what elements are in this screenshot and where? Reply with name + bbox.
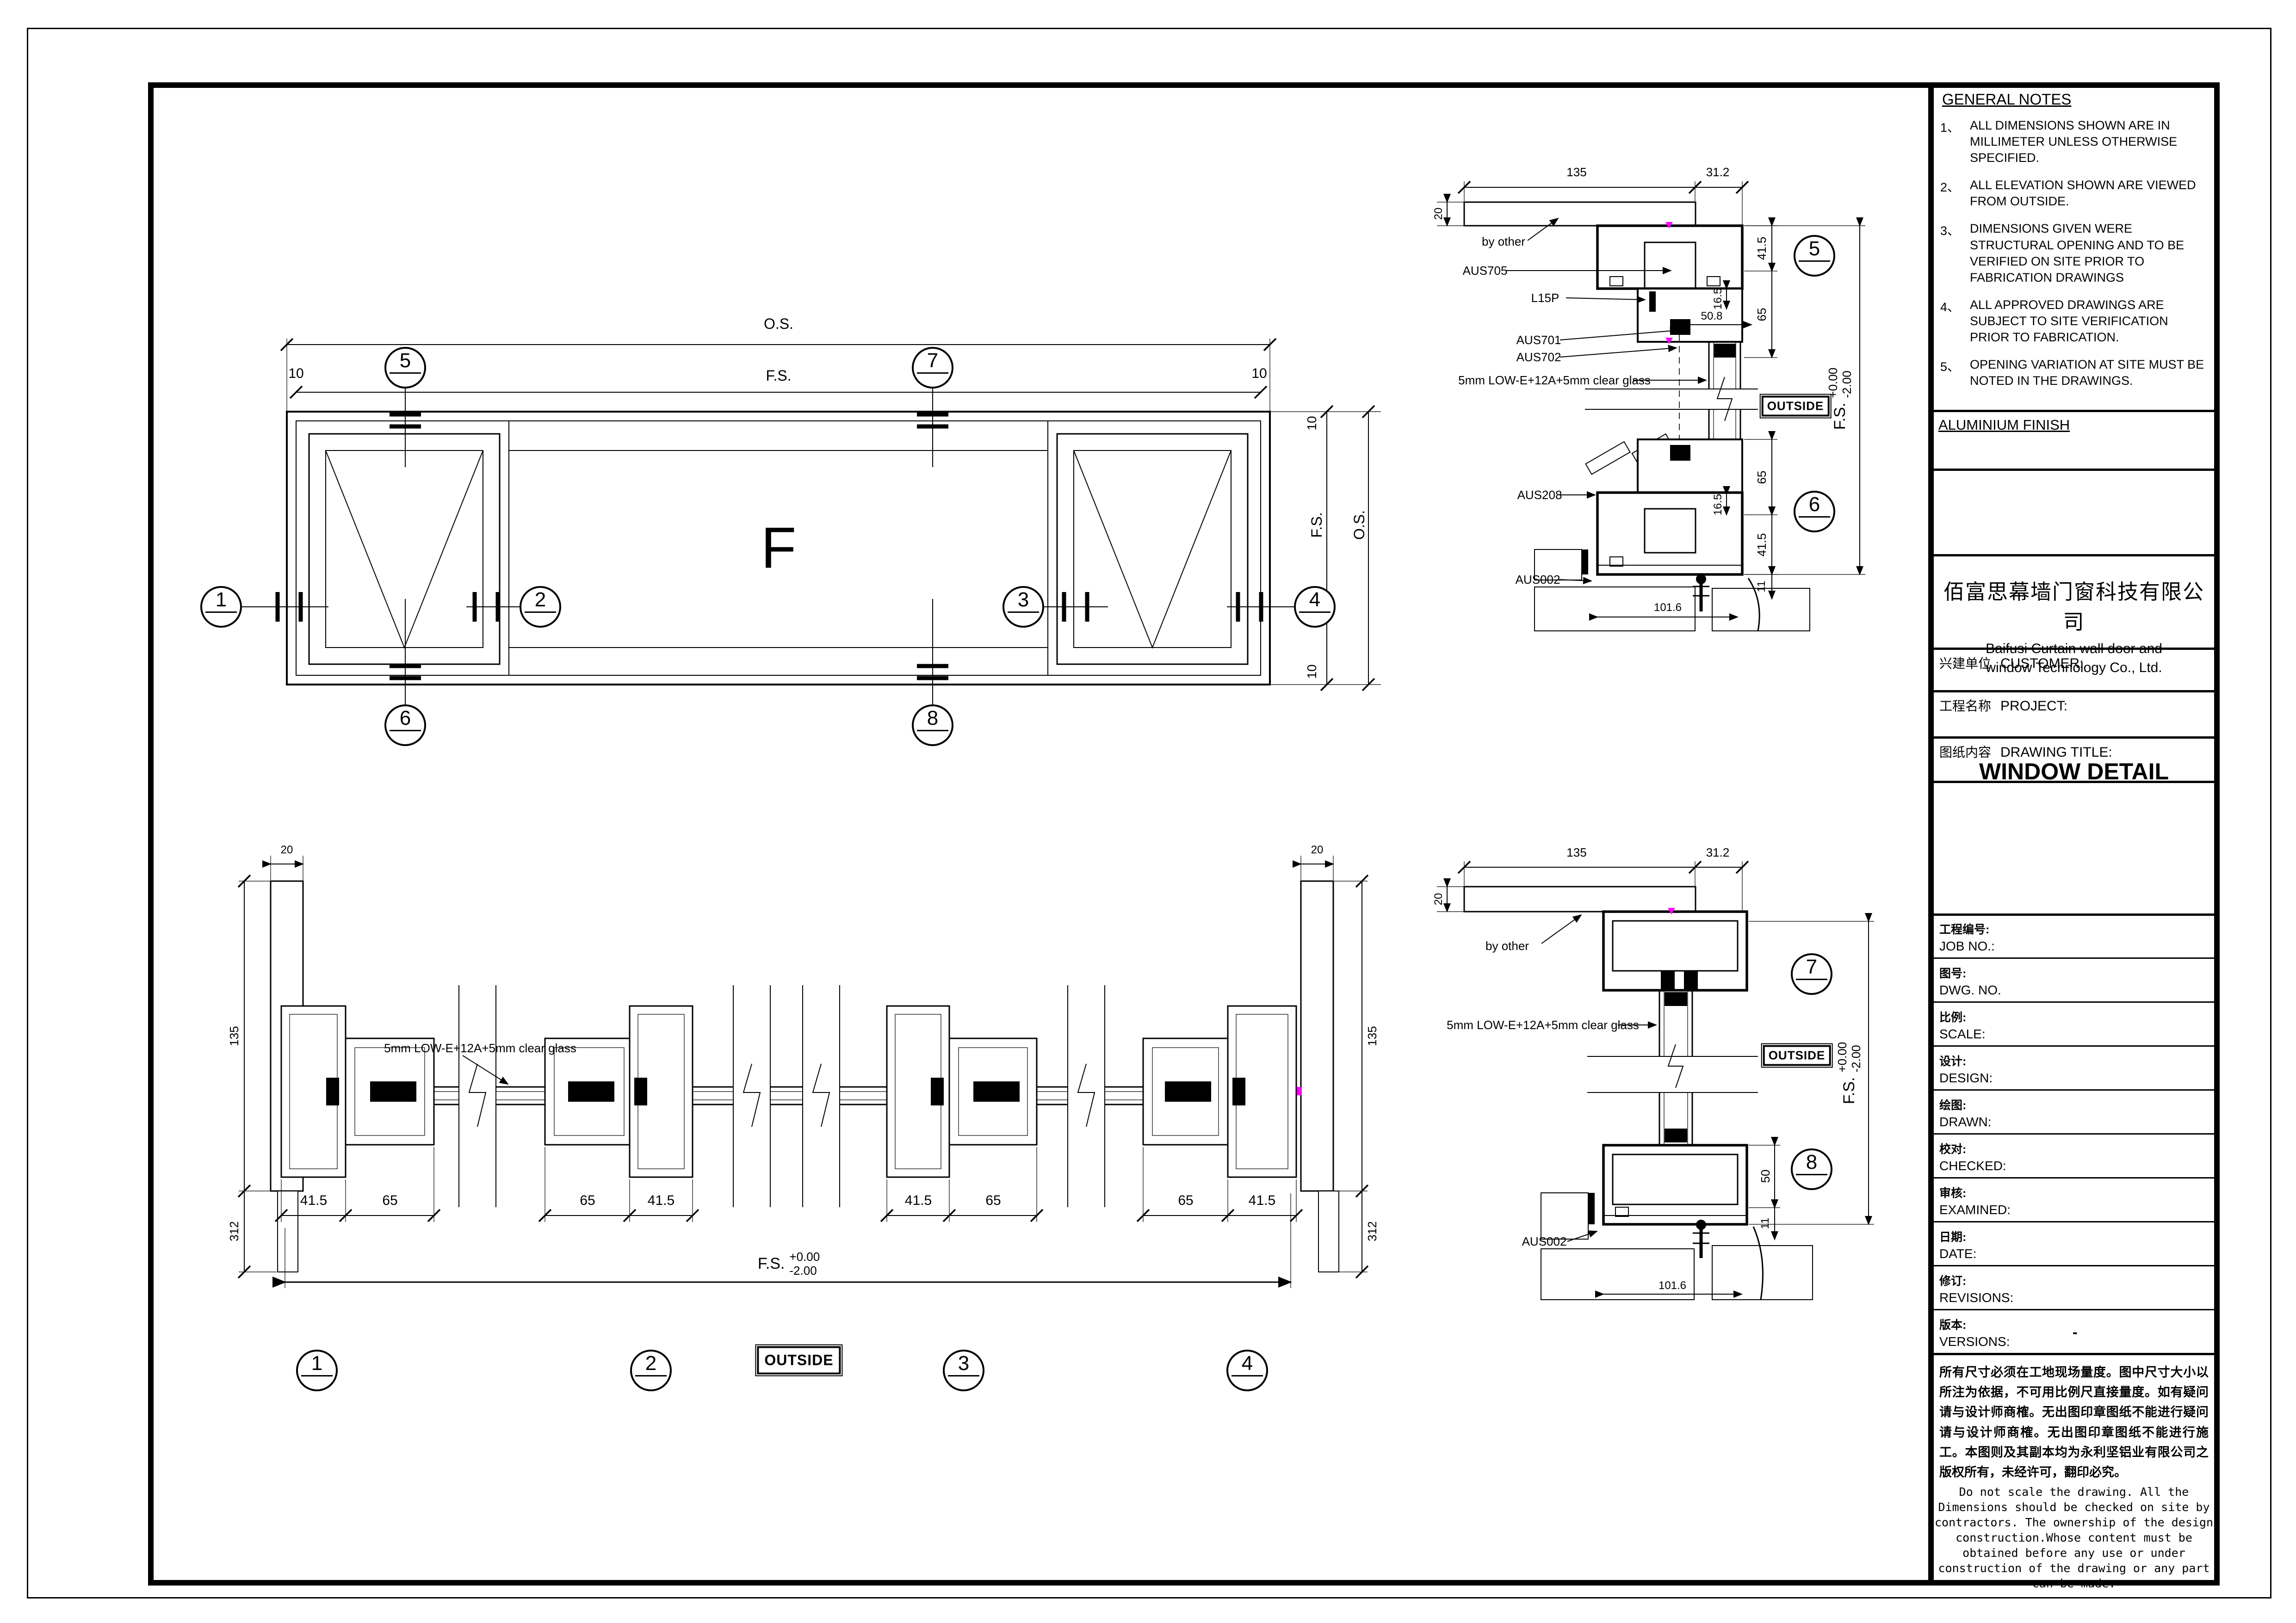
detail-bubble-2-plan: 2 [630,1350,672,1391]
dim-16-5-head: 16.5 [1713,288,1724,310]
plan-sections-linework [238,856,1368,1288]
glass-spec-label-plan: 5mm LOW-E+12A+5mm clear glass [384,1042,576,1054]
dim-41-5-plan-3: 41.5 [905,1194,932,1208]
fs-level-text: F.S. [758,1255,785,1273]
drawing-title-section: 图纸内容 DRAWING TITLE: WINDOW DETAIL [1934,736,2214,781]
outside-label-section5: OUTSIDE [1762,396,1830,417]
detail-bubble-8-section: 8 [1791,1148,1832,1190]
by-other-label-7: by other [1485,940,1529,952]
elevation-os-dim-label: O.S. [764,316,793,331]
drawing-sheet: O.S. F.S. 10 10 F.S. O.S. 10 10 F 5 7 6 … [0,0,2296,1623]
dim-20-wall-left: 20 [281,845,293,856]
dim-31-2-head-78: 31.2 [1706,846,1730,858]
detail-bubble-1-plan: 1 [296,1350,338,1391]
customer-label-cn: 兴建单位 [1939,654,1991,672]
detail-bubble-8-elevation: 8 [912,704,953,746]
detail-bubble-3-elevation: 3 [1003,586,1044,628]
dim-101-6-sill-78: 101.6 [1659,1280,1686,1291]
field-label-en: DESIGN: [1939,1071,1993,1086]
detail-bubble-5-section: 5 [1794,235,1835,277]
finish-empty-box [1934,469,2214,554]
disclaimer-section: 所有尺寸必须在工地现场量度。图中尺寸大小以所注为依据，不可用比例尺直接量度。如有… [1934,1353,2214,1586]
field-label-cn: 版本: [1939,1316,1966,1333]
dim-20-head: 20 [1433,208,1444,220]
bubble-number: 4 [1296,590,1334,610]
detail-bubble-4-plan: 4 [1226,1350,1268,1391]
field-label-en: CHECKED: [1939,1159,2006,1173]
elevation-linework [241,339,1381,706]
elevation-os-vertical-label: O.S. [1352,510,1367,540]
elevation-dim-10-right: 10 [1251,367,1267,381]
bubble-number: 3 [945,1353,983,1374]
general-note-item: 4、 ALL APPROVED DRAWINGS ARE SUBJECT TO … [1940,297,2209,346]
dim-65-plan-3: 65 [985,1194,1001,1208]
elevation-panel-label: F [761,519,796,577]
design-row: 设计: DESIGN: [1934,1045,2214,1089]
dim-20-wall-right: 20 [1311,845,1324,856]
dim-65-plan-2: 65 [580,1194,595,1208]
fs-level-upper: +0.00 [1826,368,1840,398]
fs-level-lower: -2.00 [1840,368,1854,398]
note-number: 1、 [1940,117,1970,166]
bubble-number: 6 [1795,494,1833,515]
detail-bubble-6-elevation: 6 [384,704,426,746]
profile-label-aus002-d8: AUS002 [1522,1235,1567,1247]
bubble-number: 7 [914,351,952,371]
job-no-row: 工程编号: JOB NO.: [1934,913,2214,957]
field-label-en: DWG. NO. [1939,983,2001,998]
field-label-cn: 比例: [1939,1008,1966,1025]
field-label-cn: 审核: [1939,1184,1966,1201]
bubble-number: 5 [1795,239,1833,259]
customer-label-en: CUSTOMER: [2000,656,2083,672]
note-number: 4、 [1940,297,1970,346]
general-notes-section: GENERAL NOTES 1、 ALL DIMENSIONS SHOWN AR… [1934,82,2214,410]
field-label-cn: 日期: [1939,1228,1966,1245]
detail-bubble-3-plan: 3 [943,1350,984,1391]
profile-label-aus701: AUS701 [1516,334,1561,346]
dim-312-wall-left: 312 [228,1221,240,1241]
note-text: ALL DIMENSIONS SHOWN ARE IN MILLIMETER U… [1970,117,2209,166]
dim-41-5-plan-4: 41.5 [1249,1194,1275,1208]
elevation-fs-dim-label: F.S. [766,368,791,383]
dim-101-6-sill: 101.6 [1654,602,1682,613]
bubble-number: 1 [298,1353,336,1374]
project-label-cn: 工程名称 [1939,696,1991,715]
dim-312-wall-right: 312 [1366,1221,1378,1241]
detail-bubble-6-section: 6 [1794,491,1835,532]
date-row: 日期: DATE: [1934,1221,2214,1265]
bubble-number: 4 [1228,1353,1266,1374]
elevation-dim-10-bottom: 10 [1306,664,1318,679]
field-label-en: SCALE: [1939,1027,1986,1042]
dim-16-5-sill: 16.5 [1713,494,1724,516]
fs-level-section56: F.S. +0.00-2.00 [1826,368,1854,430]
aluminium-finish-section: ALUMINIUM FINISH [1934,410,2214,469]
glass-spec-label-5: 5mm LOW-E+12A+5mm clear glass [1458,374,1651,386]
checked-row: 校对: CHECKED: [1934,1133,2214,1177]
title-empty-box [1934,781,2214,913]
disclaimer-english: Do not scale the drawing. All the Dimens… [1934,1484,2214,1591]
field-label-cn: 图号: [1939,964,1966,981]
fs-level-lower: -2.00 [1850,1042,1863,1073]
dwg-no-row: 图号: DWG. NO. [1934,957,2214,1001]
field-value: - [2073,1324,2078,1341]
glass-spec-label-7: 5mm LOW-E+12A+5mm clear glass [1447,1019,1639,1031]
title-block: GENERAL NOTES 1、 ALL DIMENSIONS SHOWN AR… [1928,82,2214,1586]
revisions-row: 修订: REVISIONS: [1934,1265,2214,1309]
elevation-dim-10-left: 10 [288,367,303,381]
bubble-number: 5 [386,351,424,371]
section-detail-7-8-linework [1437,861,1874,1300]
bubble-number: 3 [1004,590,1042,610]
profile-label-aus002-d6: AUS002 [1516,574,1560,586]
fs-level-lower: -2.00 [789,1264,820,1278]
disclaimer-chinese: 所有尺寸必须在工地现场量度。图中尺寸大小以所注为依据，不可用比例尺直接量度。如有… [1934,1355,2214,1484]
dim-11-sill-78: 11 [1760,1218,1771,1229]
note-text: DIMENSIONS GIVEN WERE STRUCTURAL OPENING… [1970,221,2209,285]
bubble-number: 7 [1793,957,1831,977]
fs-level-text: F.S. [1832,403,1850,430]
detail-bubble-5-elevation: 5 [384,347,426,389]
note-number: 2、 [1940,177,1970,210]
dim-65-sill: 65 [1756,471,1768,484]
general-notes-title: GENERAL NOTES [1942,91,2214,108]
field-label-en: EXAMINED: [1939,1203,2011,1217]
field-label-cn: 绘图: [1939,1096,1966,1113]
fs-level-upper: +0.00 [789,1250,820,1264]
drawn-row: 绘图: DRAWN: [1934,1089,2214,1133]
field-label-cn: 工程编号: [1939,920,1989,937]
profile-label-aus705: AUS705 [1463,265,1508,277]
dim-65-plan-4: 65 [1178,1194,1193,1208]
profile-label-l15p: L15P [1531,292,1560,304]
detail-bubble-1-elevation: 1 [200,586,242,628]
field-label-en: DATE: [1939,1247,1976,1261]
fs-level-section78: F.S. +0.00-2.00 [1836,1042,1863,1104]
dim-11-sill: 11 [1756,581,1767,592]
project-label-en: PROJECT: [2000,698,2067,714]
elevation-fs-vertical-label: F.S. [1309,512,1324,537]
detail-bubble-7-elevation: 7 [912,347,953,389]
general-note-item: 2、 ALL ELEVATION SHOWN ARE VIEWED FROM O… [1940,177,2209,210]
dim-65-plan-1: 65 [382,1194,397,1208]
elevation-dim-10-top: 10 [1306,416,1318,430]
dim-20-head-78: 20 [1433,893,1444,906]
dim-41-5-plan-2: 41.5 [648,1194,675,1208]
dim-135-wall-left: 135 [228,1026,240,1046]
field-label-cn: 设计: [1939,1052,1966,1069]
detail-bubble-2-elevation: 2 [520,586,561,628]
bubble-number: 1 [202,590,240,610]
company-name-cn: 佰富思幕墙门窗科技有限公司 [1934,575,2214,635]
versions-row: 版本: VERSIONS: - [1934,1309,2214,1353]
note-text: ALL ELEVATION SHOWN ARE VIEWED FROM OUTS… [1970,177,2209,210]
dim-65-head: 65 [1756,308,1768,321]
dim-135-head: 135 [1566,166,1586,178]
fs-level-plan: F.S. +0.00-2.00 [758,1250,820,1278]
profile-label-aus208: AUS208 [1517,489,1562,501]
field-label-en: VERSIONS: [1939,1334,2010,1349]
field-label-en: JOB NO.: [1939,939,1995,954]
detail-bubble-4-elevation: 4 [1294,586,1336,628]
outside-label-plan: OUTSIDE [757,1346,841,1375]
dim-41-5-sill: 41.5 [1756,533,1768,557]
fs-level-upper: +0.00 [1836,1042,1850,1073]
dim-50-8: 50.8 [1701,311,1723,322]
examined-row: 审核: EXAMINED: [1934,1177,2214,1221]
detail-bubble-7-section: 7 [1791,953,1832,995]
bubble-number: 2 [632,1353,670,1374]
note-text: ALL APPROVED DRAWINGS ARE SUBJECT TO SIT… [1970,297,2209,346]
project-section: 工程名称 PROJECT: [1934,690,2214,736]
dim-50-sill-78: 50 [1759,1170,1771,1183]
bubble-number: 8 [914,708,952,728]
dim-135-wall-right: 135 [1366,1026,1378,1046]
field-label-cn: 修订: [1939,1272,1966,1289]
company-section: 佰富思幕墙门窗科技有限公司 Baifusi Curtain wall door … [1934,554,2214,648]
profile-label-aus702: AUS702 [1516,351,1561,363]
field-label-cn: 校对: [1939,1140,1966,1157]
aluminium-finish-label: ALUMINIUM FINISH [1938,417,2214,433]
customer-section: 兴建单位 CUSTOMER: [1934,648,2214,690]
dim-135-head-78: 135 [1566,846,1586,858]
general-note-item: 5、 OPENING VARIATION AT SITE MUST BE NOT… [1940,357,2209,389]
general-note-item: 3、 DIMENSIONS GIVEN WERE STRUCTURAL OPEN… [1940,221,2209,285]
general-note-item: 1、 ALL DIMENSIONS SHOWN ARE IN MILLIMETE… [1940,117,2209,166]
field-label-en: DRAWN: [1939,1115,1992,1129]
bubble-number: 8 [1793,1152,1831,1173]
scale-row: 比例: SCALE: [1934,1001,2214,1045]
field-label-en: REVISIONS: [1939,1290,2013,1305]
dim-41-5-plan-1: 41.5 [300,1194,327,1208]
by-other-label-5: by other [1482,235,1525,247]
dim-41-5-head: 41.5 [1756,237,1768,260]
bubble-number: 2 [521,590,559,610]
fs-level-text: F.S. [1841,1077,1859,1105]
note-number: 5、 [1940,357,1970,389]
note-text: OPENING VARIATION AT SITE MUST BE NOTED … [1970,357,2209,389]
outside-label-section7: OUTSIDE [1763,1045,1831,1066]
bubble-number: 6 [386,708,424,728]
note-number: 3、 [1940,221,1970,285]
dim-31-2-head: 31.2 [1706,166,1730,178]
